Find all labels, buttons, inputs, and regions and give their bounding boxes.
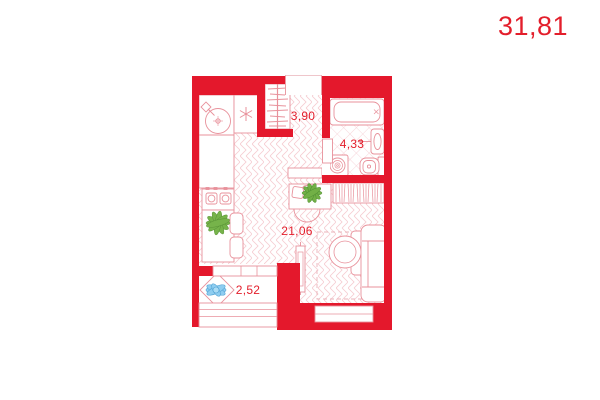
living-room-window — [315, 306, 373, 322]
stove-icon — [202, 188, 234, 211]
room-label-living-kitchen: 21,06 — [281, 224, 313, 238]
entrance-opening — [285, 75, 322, 95]
balcony-glazing — [199, 303, 277, 327]
bathtub-icon — [330, 99, 384, 125]
room-label-hallway: 3,90 — [291, 109, 316, 123]
bar-chair — [230, 213, 243, 234]
room-label-balcony: 2,52 — [236, 283, 261, 297]
floorplan-card[interactable]: 31,81 — [0, 0, 600, 400]
bar-chair — [230, 237, 243, 258]
floorplan-image: 3,90 4,33 21,06 2,52 — [0, 0, 600, 400]
sofa-icon — [361, 225, 387, 302]
console-table — [288, 168, 322, 178]
toilet-icon — [360, 157, 385, 176]
room-label-bathroom: 4,33 — [340, 137, 365, 151]
shelving-icon — [333, 183, 384, 203]
balcony-door — [213, 266, 277, 276]
